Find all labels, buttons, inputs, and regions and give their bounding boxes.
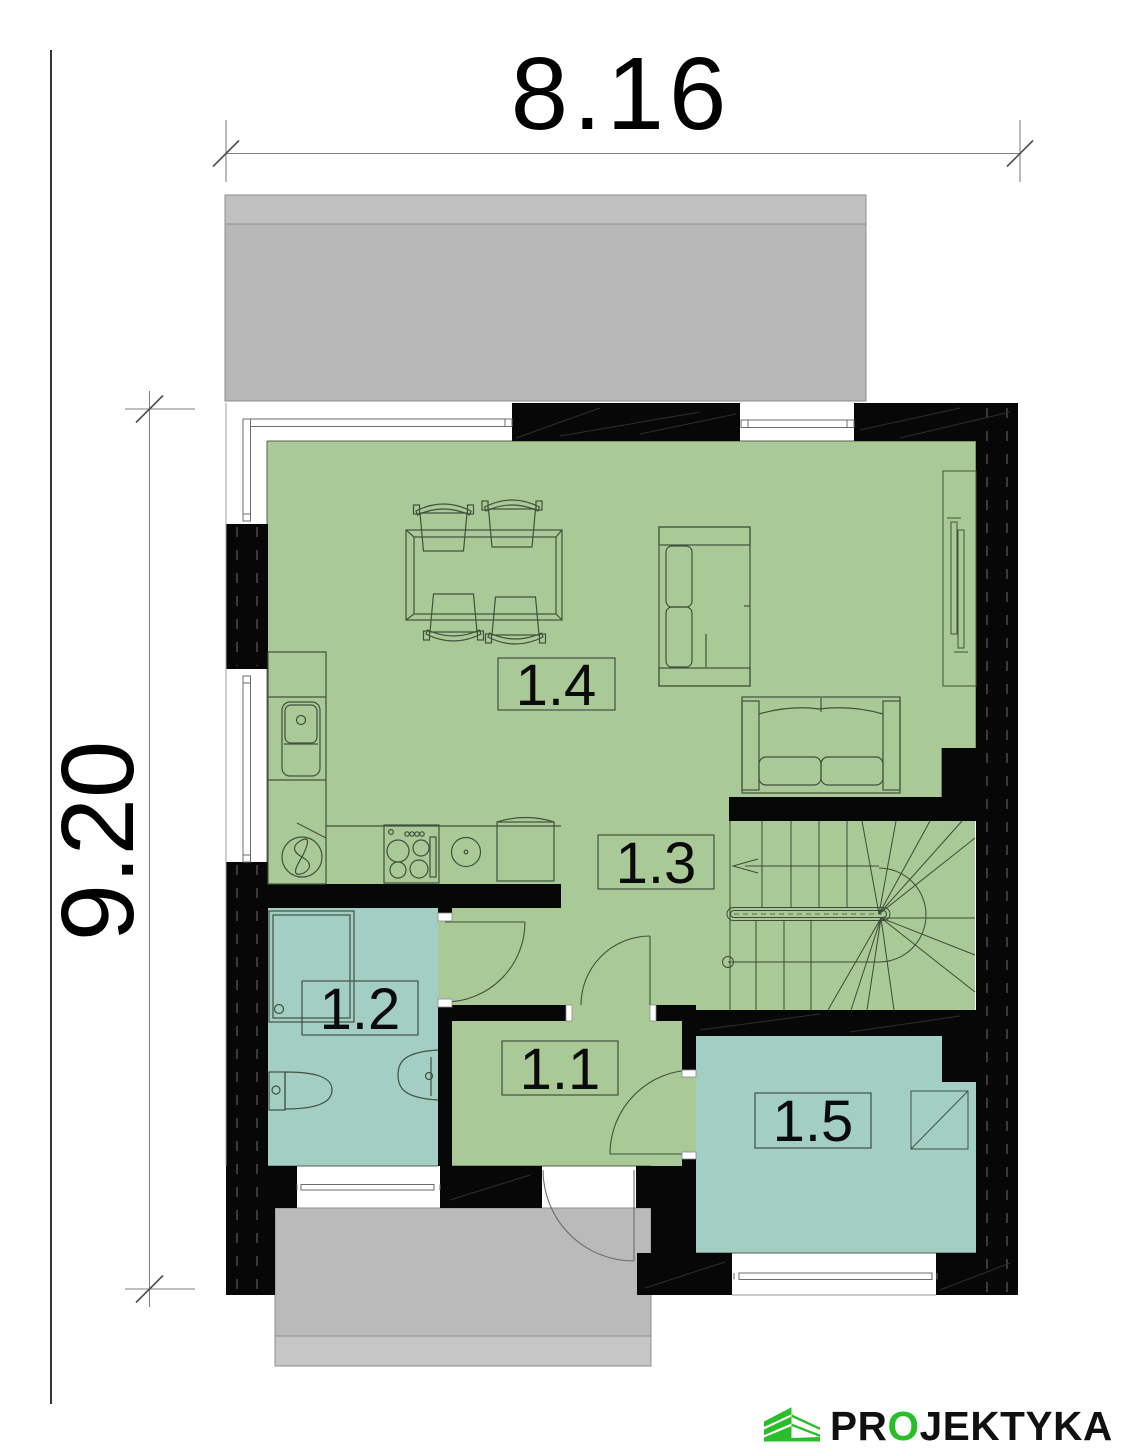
svg-text:8.16: 8.16 <box>511 36 731 151</box>
svg-text:1.4: 1.4 <box>516 653 597 718</box>
svg-text:1.2: 1.2 <box>320 977 401 1042</box>
svg-text:1.1: 1.1 <box>520 1037 601 1102</box>
svg-text:1.3: 1.3 <box>616 831 697 896</box>
svg-text:1.5: 1.5 <box>773 1089 854 1154</box>
svg-text:9.20: 9.20 <box>40 741 155 941</box>
svg-text:PROJEKTYKA: PROJEKTYKA <box>830 1403 1113 1449</box>
